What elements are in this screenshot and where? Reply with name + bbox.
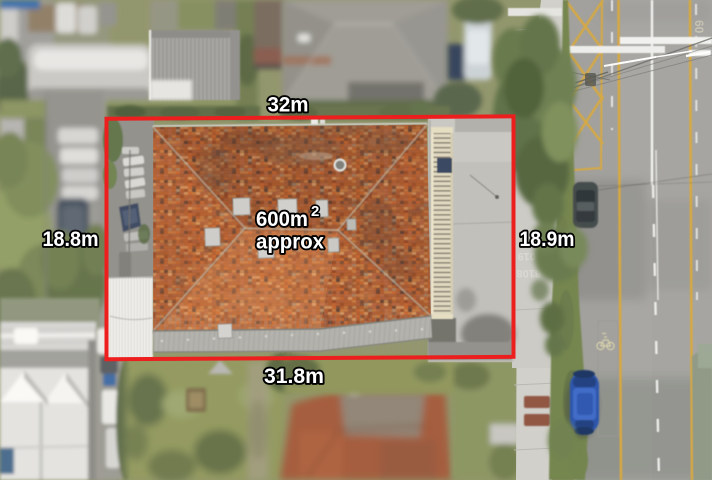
svg-text:32m: 32m	[268, 94, 309, 117]
svg-text:approx: approx	[256, 231, 324, 254]
svg-text:18.9m: 18.9m	[520, 228, 575, 251]
svg-text:31.8m: 31.8m	[264, 365, 324, 388]
svg-text:60: 60	[692, 20, 706, 34]
svg-text:600m: 600m	[256, 208, 308, 231]
svg-text:2: 2	[311, 203, 319, 220]
svg-text:18.8m: 18.8m	[43, 228, 99, 251]
